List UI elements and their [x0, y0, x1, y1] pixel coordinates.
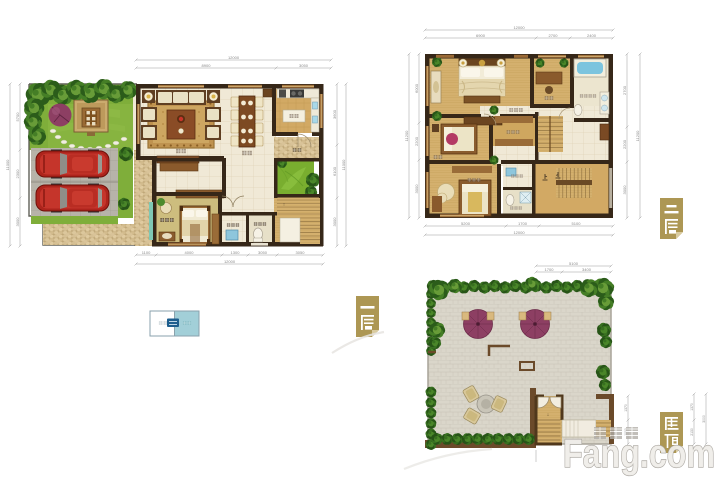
svg-text:1300: 1300 — [231, 250, 241, 255]
svg-text:3000: 3000 — [332, 217, 337, 227]
svg-text:11200: 11200 — [635, 130, 640, 142]
svg-text:5700: 5700 — [15, 112, 20, 122]
svg-text:1100: 1100 — [142, 250, 151, 255]
svg-text:2700: 2700 — [622, 85, 627, 95]
svg-text:2700: 2700 — [549, 33, 559, 38]
svg-text:5100: 5100 — [572, 221, 582, 226]
svg-text:2200: 2200 — [414, 136, 419, 146]
svg-text:8900: 8900 — [202, 63, 212, 68]
svg-text:6000: 6000 — [414, 83, 419, 93]
svg-text:12000: 12000 — [228, 55, 240, 60]
svg-text:11000: 11000 — [341, 159, 346, 171]
svg-text:2200: 2200 — [622, 139, 627, 149]
svg-text:↓: ↓ — [547, 412, 550, 418]
svg-text:↑: ↑ — [283, 202, 286, 208]
svg-text:1370: 1370 — [690, 403, 694, 411]
svg-text:12000: 12000 — [513, 230, 525, 235]
svg-text:12000: 12000 — [224, 259, 236, 264]
svg-text:3000: 3000 — [622, 185, 627, 195]
svg-text:12000: 12000 — [513, 25, 525, 30]
svg-text:2300: 2300 — [15, 169, 20, 179]
svg-text:1700: 1700 — [518, 221, 528, 226]
svg-text:1700: 1700 — [545, 267, 555, 272]
svg-text:3600: 3600 — [332, 109, 337, 119]
svg-text:3000: 3000 — [414, 184, 419, 194]
svg-text:11000: 11000 — [5, 159, 10, 171]
svg-text:1370: 1370 — [624, 404, 628, 412]
svg-text:3050: 3050 — [296, 250, 306, 255]
svg-text:3050: 3050 — [299, 63, 309, 68]
svg-text:3000: 3000 — [702, 415, 706, 423]
svg-text:Fang.com: Fang.com — [563, 432, 715, 476]
svg-text:6900: 6900 — [476, 33, 486, 38]
svg-text:5200: 5200 — [461, 221, 471, 226]
svg-text:2400: 2400 — [587, 33, 597, 38]
svg-text:3000: 3000 — [15, 217, 20, 227]
svg-text:6100: 6100 — [332, 166, 337, 176]
svg-text:3050: 3050 — [258, 250, 268, 255]
svg-text:3400: 3400 — [582, 267, 592, 272]
svg-text:11200: 11200 — [404, 130, 409, 142]
svg-text:4000: 4000 — [185, 250, 195, 255]
svg-text:5100: 5100 — [569, 261, 579, 266]
